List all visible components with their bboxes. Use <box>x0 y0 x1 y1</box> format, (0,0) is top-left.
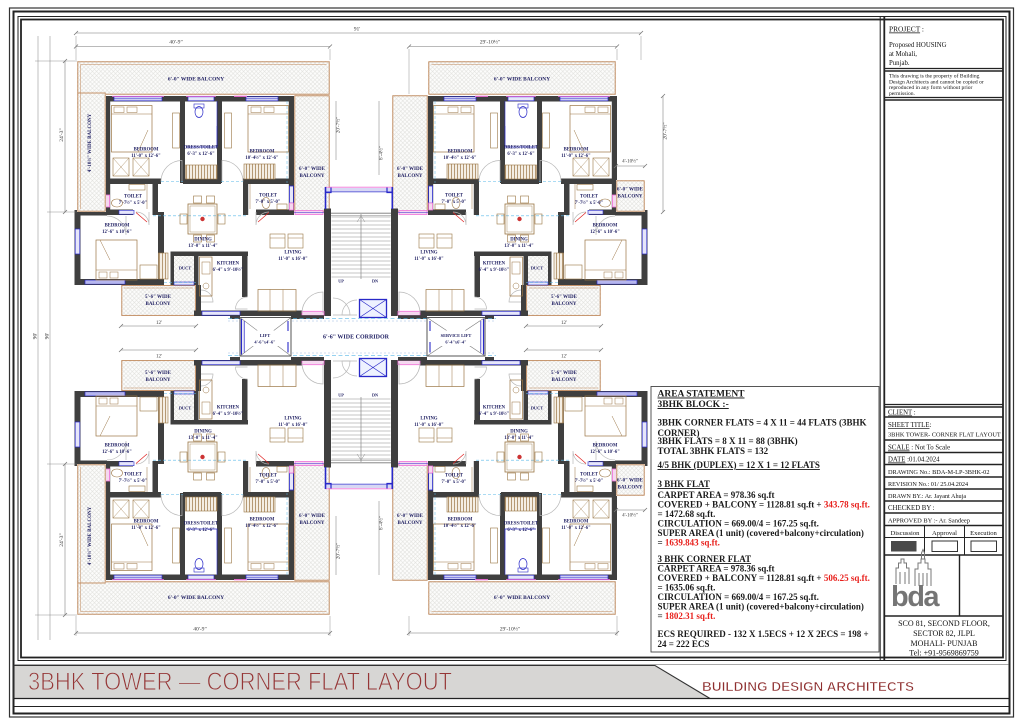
svg-text:DINING: DINING <box>510 237 528 242</box>
svg-text:12': 12' <box>561 321 567 326</box>
svg-text:BALCONY: BALCONY <box>145 302 170 307</box>
svg-text:TOILET: TOILET <box>580 472 599 477</box>
svg-text:6'-3" x 12'-6": 6'-3" x 12'-6" <box>187 152 215 157</box>
svg-text:APPROVED BY :- Ar. Sandeep: APPROVED BY :- Ar. Sandeep <box>888 518 970 525</box>
svg-text:7'-7½" x 5'-0": 7'-7½" x 5'-0" <box>119 479 148 484</box>
svg-text:MOHALI- PUNJAB: MOHALI- PUNJAB <box>911 639 978 648</box>
svg-text:Proposed HOUSING: Proposed HOUSING <box>889 42 947 49</box>
svg-text:SCALE : Not To Scale: SCALE : Not To Scale <box>888 445 950 452</box>
svg-text:BALCONY: BALCONY <box>299 521 324 526</box>
svg-text:6'-0" WIDE BALCONY: 6'-0" WIDE BALCONY <box>168 595 224 601</box>
svg-text:CARPET AREA = 978.36 sq.ft: CARPET AREA = 978.36 sq.ft <box>658 490 775 500</box>
svg-text:TOILET: TOILET <box>445 473 464 478</box>
svg-text:BALCONY: BALCONY <box>145 378 170 383</box>
svg-text:Punjab.: Punjab. <box>889 60 910 67</box>
svg-text:4/5 BHK (DUPLEX) = 12 X 1 = 12: 4/5 BHK (DUPLEX) = 12 X 1 = 12 FLATS <box>658 460 820 470</box>
svg-text:6'-6" WIDE CORRIDOR: 6'-6" WIDE CORRIDOR <box>323 335 390 341</box>
svg-text:12': 12' <box>156 321 162 326</box>
svg-text:4'-6"x4'-6": 4'-6"x4'-6" <box>254 340 275 345</box>
svg-text:4'-10½" WIDE BALCONY: 4'-10½" WIDE BALCONY <box>88 506 93 565</box>
svg-text:3BHK BLOCK :-: 3BHK BLOCK :- <box>658 400 729 410</box>
svg-text:12': 12' <box>561 355 567 360</box>
svg-text:7'-7½" x 5'-0": 7'-7½" x 5'-0" <box>575 201 604 206</box>
svg-text:BEDROOM: BEDROOM <box>105 443 130 448</box>
svg-text:29'-10½": 29'-10½" <box>480 39 501 46</box>
svg-text:3 BHK FLAT: 3 BHK FLAT <box>658 479 710 489</box>
svg-text:LIVING: LIVING <box>284 416 302 421</box>
svg-text:3BHK CORNER FLATS = 4 X 11 = 4: 3BHK CORNER FLATS = 4 X 11 = 44 FLATS (3… <box>658 418 867 428</box>
svg-text:11'-0" x 12'-6": 11'-0" x 12'-6" <box>131 526 161 531</box>
svg-text:13'-0" x 11'-4": 13'-0" x 11'-4" <box>188 436 218 441</box>
svg-text:10'-4½" x 12'-6": 10'-4½" x 12'-6" <box>443 524 477 529</box>
svg-text:6'-3" x 12'-6": 6'-3" x 12'-6" <box>507 152 535 157</box>
svg-text:6'-0" WIDE: 6'-0" WIDE <box>617 479 644 484</box>
svg-text:6'-4" x 9'-10½": 6'-4" x 9'-10½" <box>479 412 510 417</box>
svg-text:91': 91' <box>354 27 361 33</box>
svg-text:6'-3" x 12'-6": 6'-3" x 12'-6" <box>507 528 535 533</box>
svg-text:BEDROOM: BEDROOM <box>593 223 618 228</box>
svg-text:5'-6" WIDE: 5'-6" WIDE <box>145 371 172 376</box>
svg-text:11'-0" x 16'-0": 11'-0" x 16'-0" <box>278 423 308 428</box>
svg-text:LIVING: LIVING <box>284 250 302 255</box>
svg-text:11'-0" x 12'-6": 11'-0" x 12'-6" <box>131 154 161 159</box>
svg-text:SCO 81, SECOND FLOOR,: SCO 81, SECOND FLOOR, <box>898 619 990 628</box>
svg-text:12'-6" x 10'-6": 12'-6" x 10'-6" <box>102 230 132 235</box>
svg-text:7'-0" x 5'-0": 7'-0" x 5'-0" <box>442 200 467 205</box>
svg-text:LIVING: LIVING <box>420 250 438 255</box>
svg-text:6'-3" x 12'-6": 6'-3" x 12'-6" <box>187 528 215 533</box>
svg-text:5'-6" WIDE: 5'-6" WIDE <box>551 295 578 300</box>
svg-text:permission.: permission. <box>889 91 916 97</box>
svg-text:DINING: DINING <box>510 429 528 434</box>
svg-text:LIFT: LIFT <box>260 333 270 338</box>
svg-text:Discussion: Discussion <box>891 530 921 537</box>
svg-text:DRAWING No.: BDA-M-LP-3BHK-02: DRAWING No.: BDA-M-LP-3BHK-02 <box>888 469 989 476</box>
svg-text:TOILET: TOILET <box>124 472 143 477</box>
svg-text:BEDROOM: BEDROOM <box>250 149 275 154</box>
svg-text:COVERED + BALCONY = 1128.81 sq: COVERED + BALCONY = 1128.81 sq.ft + 343.… <box>658 500 870 510</box>
svg-text:= 1635.06 sq.ft.: = 1635.06 sq.ft. <box>658 583 716 593</box>
svg-text:BEDROOM: BEDROOM <box>564 519 589 524</box>
svg-text:4'-10½": 4'-10½" <box>622 514 638 519</box>
svg-text:11'-0" x 16'-0": 11'-0" x 16'-0" <box>414 423 444 428</box>
svg-text:7'-0" x 5'-0": 7'-0" x 5'-0" <box>256 480 281 485</box>
svg-text:24'-3": 24'-3" <box>59 128 65 142</box>
svg-text:6'-4" x 9'-10½": 6'-4" x 9'-10½" <box>213 412 244 417</box>
svg-text:DINING: DINING <box>194 237 212 242</box>
svg-text:6'-0" WIDE BALCONY: 6'-0" WIDE BALCONY <box>168 77 224 83</box>
svg-text:13'-0" x 11'-4": 13'-0" x 11'-4" <box>504 244 534 249</box>
svg-text:SERVICE LIFT: SERVICE LIFT <box>441 333 472 338</box>
svg-text:TOILET: TOILET <box>124 194 143 199</box>
svg-text:BEDROOM: BEDROOM <box>250 517 275 522</box>
svg-text:DINING: DINING <box>194 429 212 434</box>
svg-text:BALCONY: BALCONY <box>551 302 576 307</box>
svg-text:BALCONY: BALCONY <box>397 521 422 526</box>
svg-text:6'-4"x6'-4": 6'-4"x6'-4" <box>445 340 466 345</box>
svg-text:DUCT: DUCT <box>531 266 544 271</box>
svg-text:7'-0" x 5'-0": 7'-0" x 5'-0" <box>256 200 281 205</box>
svg-text:KITCHEN: KITCHEN <box>217 261 240 266</box>
svg-text:BALCONY: BALCONY <box>299 174 324 179</box>
svg-text:UP: UP <box>338 393 344 398</box>
svg-text:DRESS/TOILET: DRESS/TOILET <box>184 521 219 526</box>
svg-text:REVISION No.: 01/ 25.04.2024: REVISION No.: 01/ 25.04.2024 <box>888 481 968 488</box>
svg-text:20'-7½": 20'-7½" <box>335 543 342 559</box>
svg-text:CHECKED BY :: CHECKED BY : <box>888 505 935 512</box>
svg-text:Approval: Approval <box>932 530 957 537</box>
svg-text:TOILET: TOILET <box>259 473 278 478</box>
svg-text:ECS REQUIRED - 132 X 1.5ECS +: ECS REQUIRED - 132 X 1.5ECS + 12 X 2ECS … <box>658 629 869 639</box>
svg-text:CARPET AREA = 978.36 sq.ft: CARPET AREA = 978.36 sq.ft <box>658 564 775 574</box>
svg-text:11'-0" x 12'-6": 11'-0" x 12'-6" <box>561 526 591 531</box>
svg-text:BALCONY: BALCONY <box>617 486 642 491</box>
svg-text:6'-4" x 9'-10½": 6'-4" x 9'-10½" <box>479 268 510 273</box>
svg-text:90': 90' <box>33 333 39 340</box>
svg-text:DATE :01.04.2024: DATE :01.04.2024 <box>888 457 940 464</box>
svg-text:UP: UP <box>338 279 344 284</box>
svg-text:10'-4½" x 12'-6": 10'-4½" x 12'-6" <box>245 156 279 161</box>
svg-text:KITCHEN: KITCHEN <box>483 261 506 266</box>
svg-text:11'-0" x 12'-6": 11'-0" x 12'-6" <box>561 154 591 159</box>
svg-text:KITCHEN: KITCHEN <box>217 405 240 410</box>
svg-text:BEDROOM: BEDROOM <box>593 443 618 448</box>
svg-text:BALCONY: BALCONY <box>551 378 576 383</box>
svg-text:BEDROOM: BEDROOM <box>448 517 473 522</box>
svg-text:AREA STATEMENT: AREA STATEMENT <box>658 390 746 400</box>
svg-text:BEDROOM: BEDROOM <box>134 147 159 152</box>
svg-text:TOILET: TOILET <box>580 194 599 199</box>
svg-text:4'-10½": 4'-10½" <box>622 160 638 165</box>
svg-text:11'-0" x 16'-0": 11'-0" x 16'-0" <box>278 257 308 262</box>
svg-text:BEDROOM: BEDROOM <box>564 147 589 152</box>
svg-text:at Mohali,: at Mohali, <box>889 51 917 58</box>
svg-text:6'-4" x 9'-10½": 6'-4" x 9'-10½" <box>213 268 244 273</box>
svg-text:DUCT: DUCT <box>179 266 192 271</box>
svg-text:DRAWN BY.: Ar. Jayant Ahuja: DRAWN BY.: Ar. Jayant Ahuja <box>888 493 966 500</box>
svg-text:29'-10½": 29'-10½" <box>500 626 521 633</box>
svg-text:12'-6" x 10'-6": 12'-6" x 10'-6" <box>102 450 132 455</box>
svg-text:13'-0" x 11'-4": 13'-0" x 11'-4" <box>188 244 218 249</box>
svg-text:6'-0" WIDE: 6'-0" WIDE <box>299 514 326 519</box>
svg-text:12'-6" x 10'-6": 12'-6" x 10'-6" <box>590 230 620 235</box>
svg-text:Tel: +91-9569869759: Tel: +91-9569869759 <box>909 649 979 658</box>
svg-text:BALCONY: BALCONY <box>617 195 642 200</box>
svg-text:24 = 222 ECS: 24 = 222 ECS <box>658 639 710 649</box>
svg-text:DRESS/TOILET: DRESS/TOILET <box>184 145 219 150</box>
svg-text:13'-0" x 11'-4": 13'-0" x 11'-4" <box>504 436 534 441</box>
svg-text:7'-7½" x 5'-0": 7'-7½" x 5'-0" <box>119 201 148 206</box>
svg-text:40'-9": 40'-9" <box>169 40 183 46</box>
svg-text:7'-0" x 5'-0": 7'-0" x 5'-0" <box>442 480 467 485</box>
svg-text:DUCT: DUCT <box>531 406 544 411</box>
svg-text:6'-0" WIDE: 6'-0" WIDE <box>397 514 424 519</box>
svg-text:10'-4½" x 12'-6": 10'-4½" x 12'-6" <box>245 524 279 529</box>
svg-text:4'-10½" WIDE BALCONY: 4'-10½" WIDE BALCONY <box>88 113 93 172</box>
svg-text:DRESS/TOILET: DRESS/TOILET <box>504 521 539 526</box>
svg-text:DRESS/TOILET: DRESS/TOILET <box>504 145 539 150</box>
svg-text:BEDROOM: BEDROOM <box>105 223 130 228</box>
svg-text:TOILET: TOILET <box>259 193 278 198</box>
svg-text:6'-0" WIDE BALCONY: 6'-0" WIDE BALCONY <box>494 77 550 83</box>
svg-text:5'-6" WIDE: 5'-6" WIDE <box>551 371 578 376</box>
svg-text:TOILET: TOILET <box>445 193 464 198</box>
svg-text:DUCT: DUCT <box>179 406 192 411</box>
svg-text:24'-3": 24'-3" <box>59 533 65 547</box>
svg-text:40'-9": 40'-9" <box>193 627 207 633</box>
svg-text:3BHK TOWER- CORNER FLAT LAYOUT: 3BHK TOWER- CORNER FLAT LAYOUT <box>888 432 1001 439</box>
svg-text:20'-7½": 20'-7½" <box>662 122 669 139</box>
svg-text:KITCHEN: KITCHEN <box>483 405 506 410</box>
svg-text:BEDROOM: BEDROOM <box>134 519 159 524</box>
svg-text:= 1639.843 sq.ft.: = 1639.843 sq.ft. <box>658 538 720 548</box>
svg-text:Execution: Execution <box>970 530 997 537</box>
svg-text:6'-0" WIDE BALCONY: 6'-0" WIDE BALCONY <box>494 595 550 601</box>
svg-text:10'-4½" x 12'-6": 10'-4½" x 12'-6" <box>443 156 477 161</box>
svg-text:DN: DN <box>372 393 378 398</box>
svg-text:8'-4½": 8'-4½" <box>378 146 385 160</box>
svg-text:DN: DN <box>372 279 378 284</box>
svg-text:bda: bda <box>891 581 940 613</box>
svg-text:BUILDING DESIGN ARCHITECTS: BUILDING DESIGN ARCHITECTS <box>702 679 914 694</box>
svg-text:LIVING: LIVING <box>420 416 438 421</box>
svg-text:CLIENT :: CLIENT : <box>888 410 916 417</box>
svg-text:12'-6" x 10'-6": 12'-6" x 10'-6" <box>590 450 620 455</box>
svg-text:BEDROOM: BEDROOM <box>448 149 473 154</box>
svg-text:3BHK FLATS = 8 X 11 = 88 (3BHK: 3BHK FLATS = 8 X 11 = 88 (3BHK) <box>658 436 798 446</box>
svg-text:90': 90' <box>45 333 51 340</box>
svg-text:SECTOR 82, JLPL: SECTOR 82, JLPL <box>913 629 975 638</box>
svg-text:COVERED + BALCONY = 1128.81 sq: COVERED + BALCONY = 1128.81 sq.ft + 506.… <box>658 573 870 583</box>
svg-text:7'-7½" x 5'-0": 7'-7½" x 5'-0" <box>575 479 604 484</box>
svg-text:BALCONY: BALCONY <box>397 174 422 179</box>
svg-text:6'-0" WIDE: 6'-0" WIDE <box>617 188 644 193</box>
svg-text:CIRCULATION = 669.00/4 = 167.2: CIRCULATION = 669.00/4 = 167.25 sq.ft. <box>658 592 819 602</box>
svg-text:SUPER AREA (1 unit) (covered+b: SUPER AREA (1 unit) (covered+balcony+cir… <box>658 528 864 538</box>
svg-text:5'-6" WIDE: 5'-6" WIDE <box>145 295 172 300</box>
svg-text:TOTAL 3BHK FLATS = 132: TOTAL 3BHK FLATS = 132 <box>658 446 769 456</box>
svg-text:CIRCULATION = 669.00/4 = 167.2: CIRCULATION = 669.00/4 = 167.25 sq.ft. <box>658 519 819 529</box>
svg-text:SHEET TITLE:: SHEET TITLE: <box>888 422 931 429</box>
svg-text:11'-0" x 16'-0": 11'-0" x 16'-0" <box>414 257 444 262</box>
svg-text:PROJECT :: PROJECT : <box>889 25 924 34</box>
svg-text:SUPER AREA (1 unit) (covered+b: SUPER AREA (1 unit) (covered+balcony+cir… <box>658 602 864 612</box>
svg-text:6'-0" WIDE: 6'-0" WIDE <box>299 167 326 172</box>
svg-text:8'-4½": 8'-4½" <box>378 516 385 530</box>
svg-text:3BHK TOWER — CORNER FLAT: 3BHK TOWER — CORNER FLAT LAYOUT <box>28 668 452 696</box>
svg-text:20'-7½": 20'-7½" <box>335 117 342 133</box>
svg-text:3 BHK CORNER FLAT: 3 BHK CORNER FLAT <box>658 554 752 564</box>
svg-text:= 1472.68 sq.ft.: = 1472.68 sq.ft. <box>658 509 716 519</box>
svg-text:= 1802.31 sq.ft.: = 1802.31 sq.ft. <box>658 611 716 621</box>
svg-text:6'-0" WIDE: 6'-0" WIDE <box>397 167 424 172</box>
svg-text:12': 12' <box>156 355 162 360</box>
